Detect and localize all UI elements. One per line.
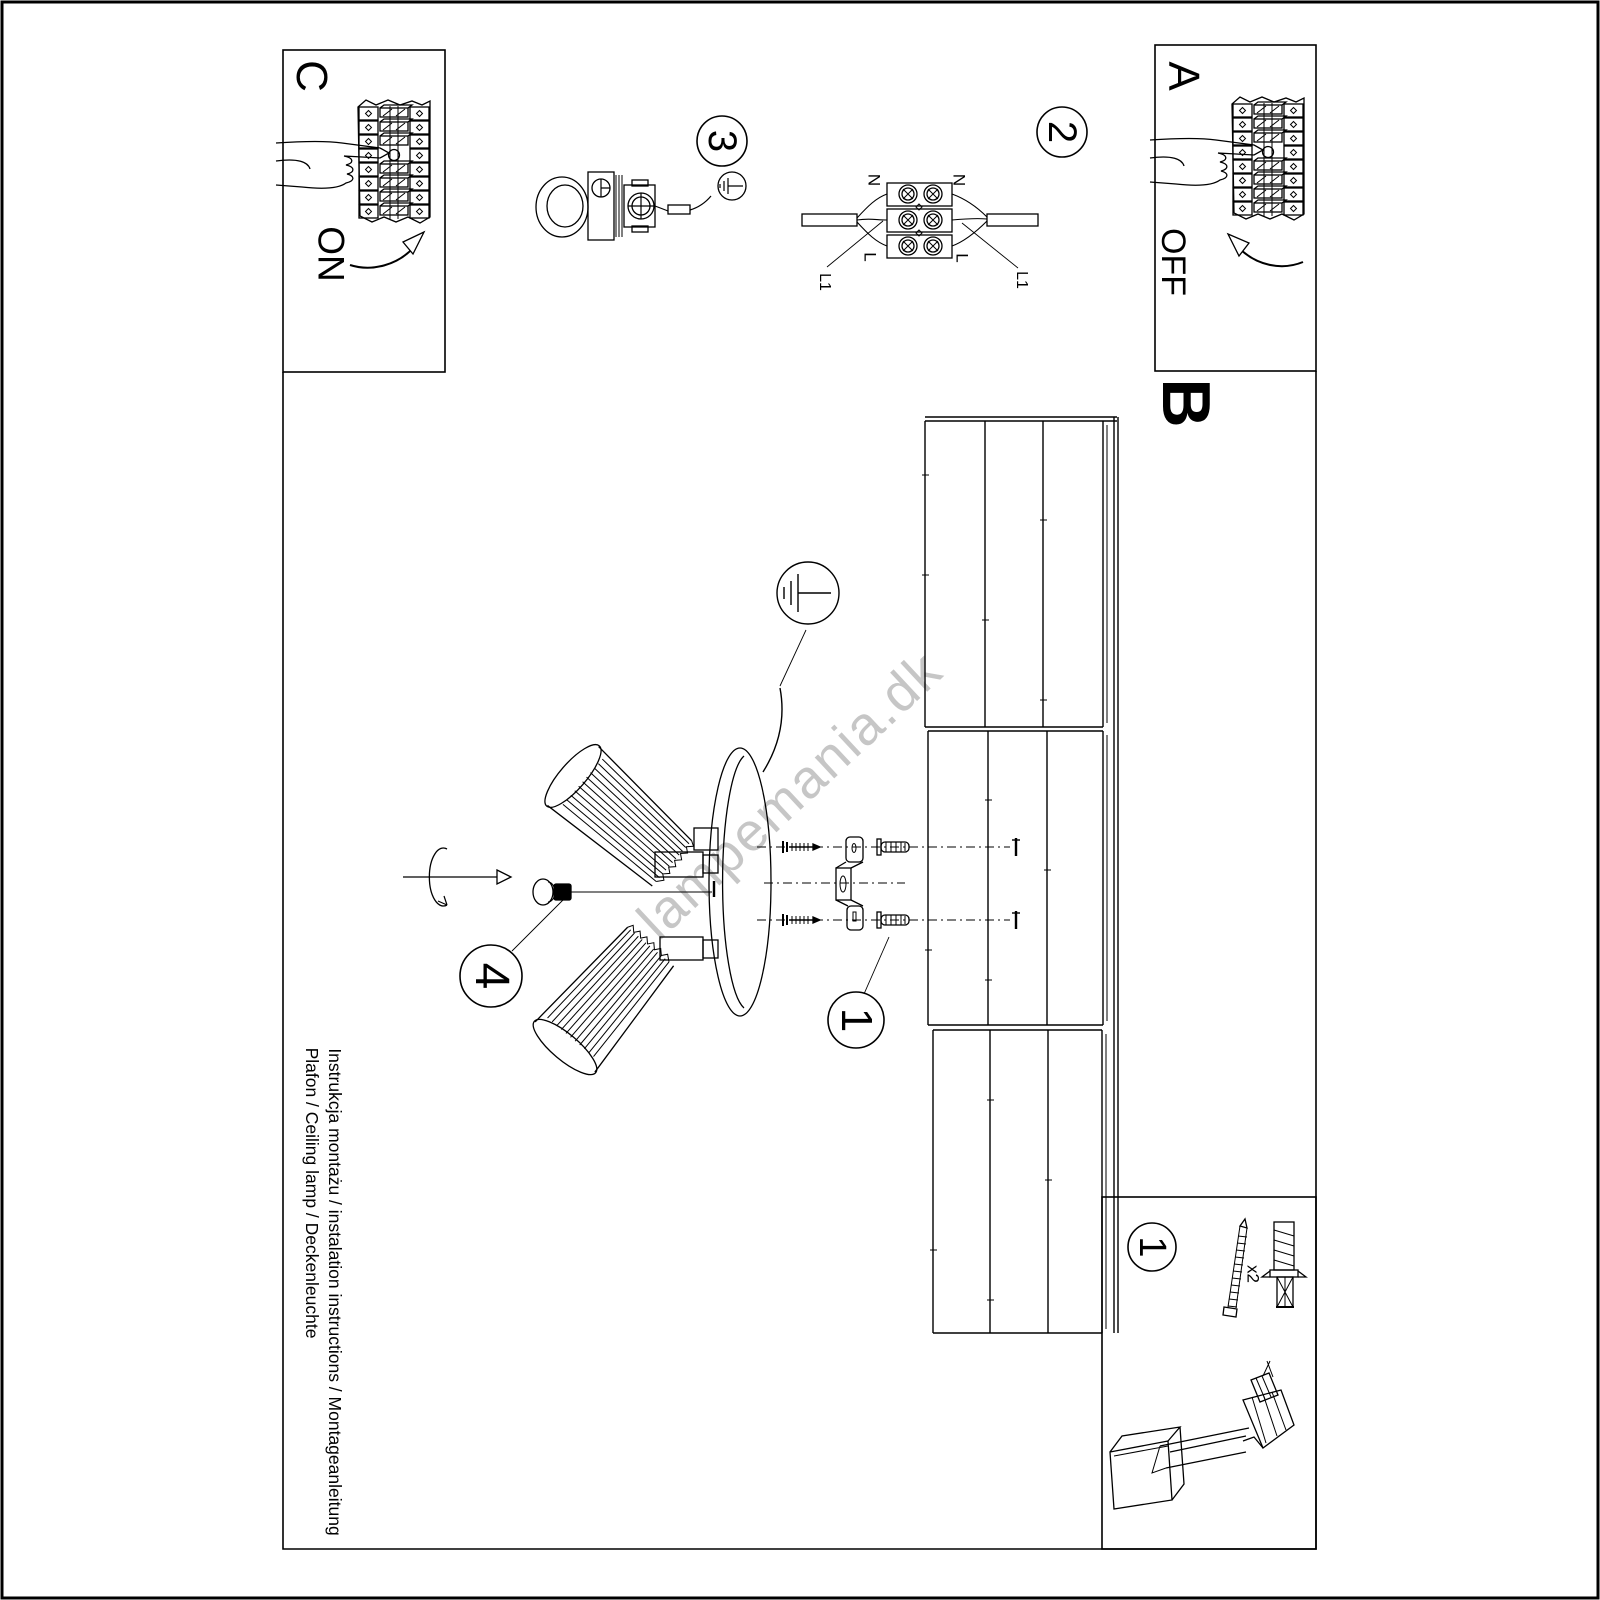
panel-a-label: A <box>1161 61 1205 90</box>
wire-label-n-left: N <box>866 174 883 186</box>
mounting-bracket <box>836 837 863 930</box>
footer-title-line1: Instrukcja montażu / instalation instruc… <box>325 1048 343 1535</box>
cable-right <box>987 214 1038 226</box>
step-1-number: 1 <box>834 1008 878 1032</box>
outer-frame <box>2 2 1598 1598</box>
power-wire <box>763 688 782 772</box>
footer-title-line2: Plafon / Ceiling lamp / Deckenleuchte <box>302 1048 320 1339</box>
ground-wire <box>655 196 711 211</box>
panel-b-label: B <box>1152 378 1220 427</box>
accessories-content <box>1110 1219 1306 1509</box>
wire-label-l1-left: L1 <box>816 273 832 291</box>
panel-a-box <box>1155 45 1316 371</box>
drill-icon <box>1110 1361 1294 1509</box>
panel-b-box <box>283 371 1316 1549</box>
cable-left <box>802 214 857 226</box>
lamp-exploded-view <box>403 562 1010 1083</box>
set-screw <box>533 879 714 905</box>
rotation-arrow-icon <box>403 848 511 906</box>
panel-c-box <box>283 50 445 372</box>
wire-label-l1-right: L1 <box>1013 271 1029 289</box>
instruction-sheet-page: lampemania.dk <box>0 0 1600 1600</box>
terminal-screws <box>899 185 942 255</box>
step-2-number: 2 <box>1042 121 1082 143</box>
page-borders <box>2 2 1598 1598</box>
line-art <box>0 0 1600 1600</box>
wire-label-l-left: L <box>862 252 879 261</box>
accessories-step-number: 1 <box>1133 1236 1171 1257</box>
step-3-number: 3 <box>702 130 742 152</box>
on-label: ON <box>313 226 350 282</box>
curved-arrow-icon <box>1239 248 1303 266</box>
lamp-shade-upper <box>537 737 703 896</box>
ceiling-planks <box>922 417 1118 1333</box>
wire-label-l-right: L <box>954 253 971 262</box>
l1-leader-lines <box>827 221 1018 268</box>
wire-label-n-right: N <box>951 174 968 186</box>
accessories-quantity: x2 <box>1245 1265 1262 1283</box>
off-label: OFF <box>1156 228 1190 296</box>
power-on-illustration <box>276 100 430 268</box>
curved-arrow-icon <box>350 247 414 268</box>
panel-c-label: C <box>289 60 333 92</box>
step-4-number: 4 <box>467 963 515 990</box>
center-lines <box>757 847 1010 920</box>
wall-plug-icon <box>1262 1222 1306 1307</box>
